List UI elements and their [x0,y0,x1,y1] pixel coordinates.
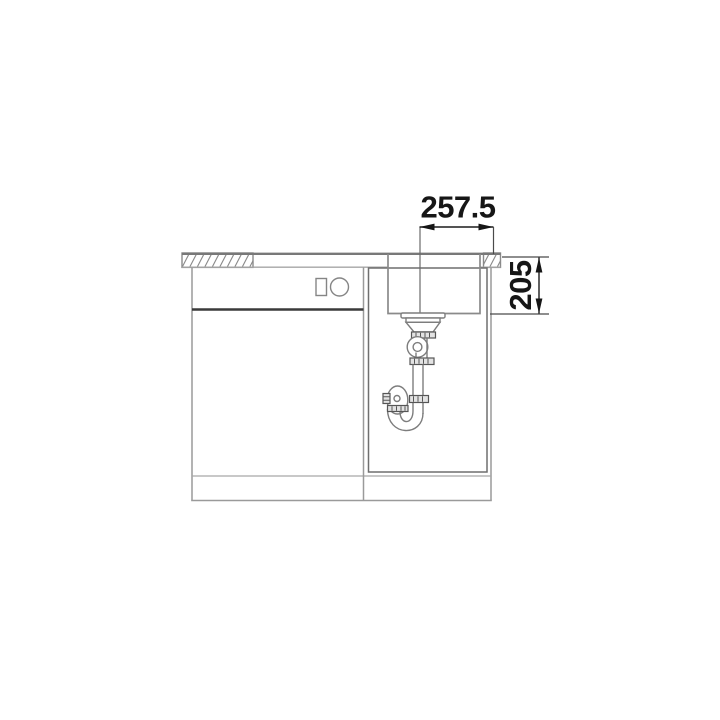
width-dimension-label: 257.5 [420,190,495,225]
drain-downpipe [413,365,423,415]
sink-bowl [388,254,480,314]
dimension-horizontal: 257.5 [420,190,496,255]
arrow-right-icon [479,224,494,231]
countertop-section-hatch-right [484,253,501,267]
door-circle-symbol [331,278,349,296]
cabinet [191,268,492,501]
sink-compartment-interior [369,268,488,472]
countertop [182,253,501,267]
trap-nut-horizontal [388,406,409,412]
drain-basket-taper [406,322,440,332]
sink-bowl-outline [388,254,480,314]
depth-dimension-label: 205 [503,260,538,310]
sink-installation-drawing-page: 257.5 205 [0,0,720,720]
arrow-left-icon [420,224,435,231]
drain-flange [401,313,445,318]
trap-left-fitting [383,394,390,404]
siphon-trap [383,386,429,431]
countertop-section-hatch-left [182,253,253,267]
drain-elbow-outer [407,337,428,358]
door-square-symbol [316,279,327,296]
drain-coupling-nut [410,358,434,365]
trap-nut-on-downpipe [410,396,429,403]
sink-installation-diagram: 257.5 205 [0,0,720,720]
